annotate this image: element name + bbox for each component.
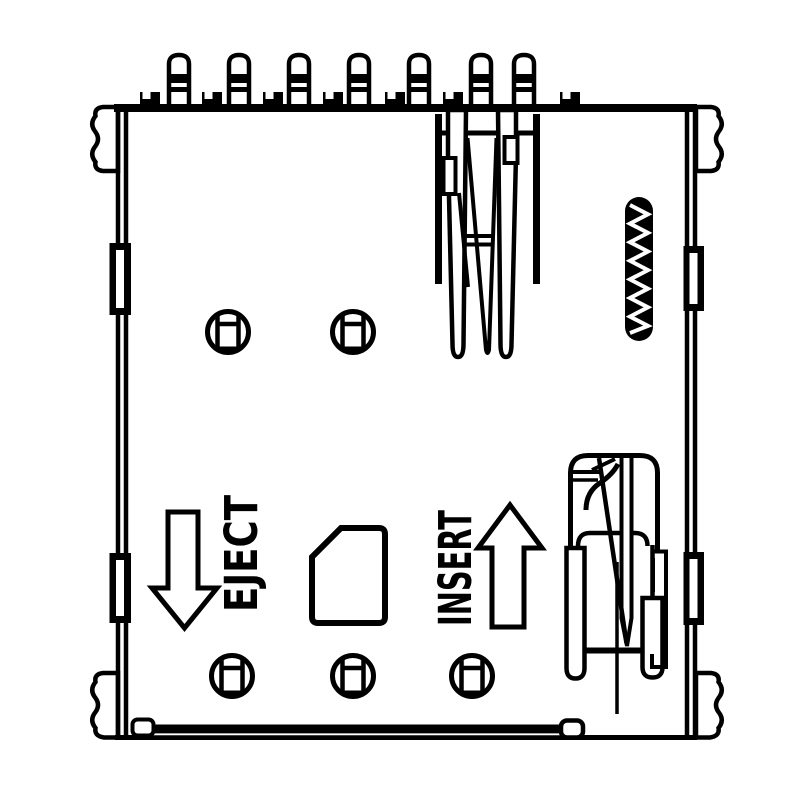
- insert-label: INSERT: [429, 510, 482, 626]
- bottom-slot-bar: [140, 725, 563, 734]
- pin-3: [289, 55, 309, 109]
- mounting-tab-bottom-left: [92, 673, 118, 738]
- mounting-tab-bottom-right: [696, 673, 722, 738]
- pin-5: [409, 55, 429, 109]
- pin-2: [229, 55, 249, 109]
- screw-post: [333, 312, 374, 353]
- housing-outline: [114, 105, 697, 738]
- pin-7: [514, 55, 534, 109]
- edge-notch: [140, 92, 160, 105]
- wall-tab-left-bottom: [110, 553, 132, 623]
- latch-mechanism: [567, 456, 667, 715]
- bottom-slot-stop-right: [561, 721, 583, 738]
- edge-notch: [202, 92, 222, 105]
- screw-post: [208, 312, 249, 353]
- wall-tab-left-top: [110, 243, 132, 315]
- spring-box-left: [444, 158, 456, 194]
- screw-post: [333, 656, 374, 697]
- latch-hook-edge: [592, 459, 615, 470]
- eject-arrow-icon: [152, 512, 217, 628]
- card-detect-spring: [437, 110, 538, 357]
- edge-notch: [443, 92, 463, 105]
- screw-post: [452, 656, 493, 697]
- sim-card-icon: [312, 528, 385, 623]
- edge-notch: [385, 92, 405, 105]
- edge-notch: [323, 92, 343, 105]
- eject-indicator: EJECT: [152, 495, 268, 628]
- pin-row: [169, 55, 534, 109]
- pin-1: [169, 55, 189, 109]
- edge-notch: [263, 92, 283, 105]
- insert-arrow-icon: [478, 505, 542, 627]
- mounting-tab-top-left: [92, 107, 118, 171]
- pin-6: [471, 55, 491, 109]
- eject-label: EJECT: [215, 495, 268, 612]
- screw-post: [212, 656, 253, 697]
- bottom-slot: [133, 720, 584, 738]
- bottom-slot-stop-left: [133, 720, 154, 736]
- latch-left-leg: [567, 548, 585, 679]
- spring-box-right: [505, 137, 518, 163]
- edge-notch: [560, 92, 580, 105]
- wall-tab-right-top: [684, 246, 705, 311]
- insert-indicator: INSERT: [429, 505, 542, 627]
- coil-spring: [625, 197, 653, 341]
- sim-connector-drawing: EJECT INSERT: [0, 0, 800, 800]
- mounting-tab-top-right: [696, 107, 722, 171]
- pin-4: [349, 55, 369, 109]
- wall-tab-right-bottom: [684, 552, 705, 625]
